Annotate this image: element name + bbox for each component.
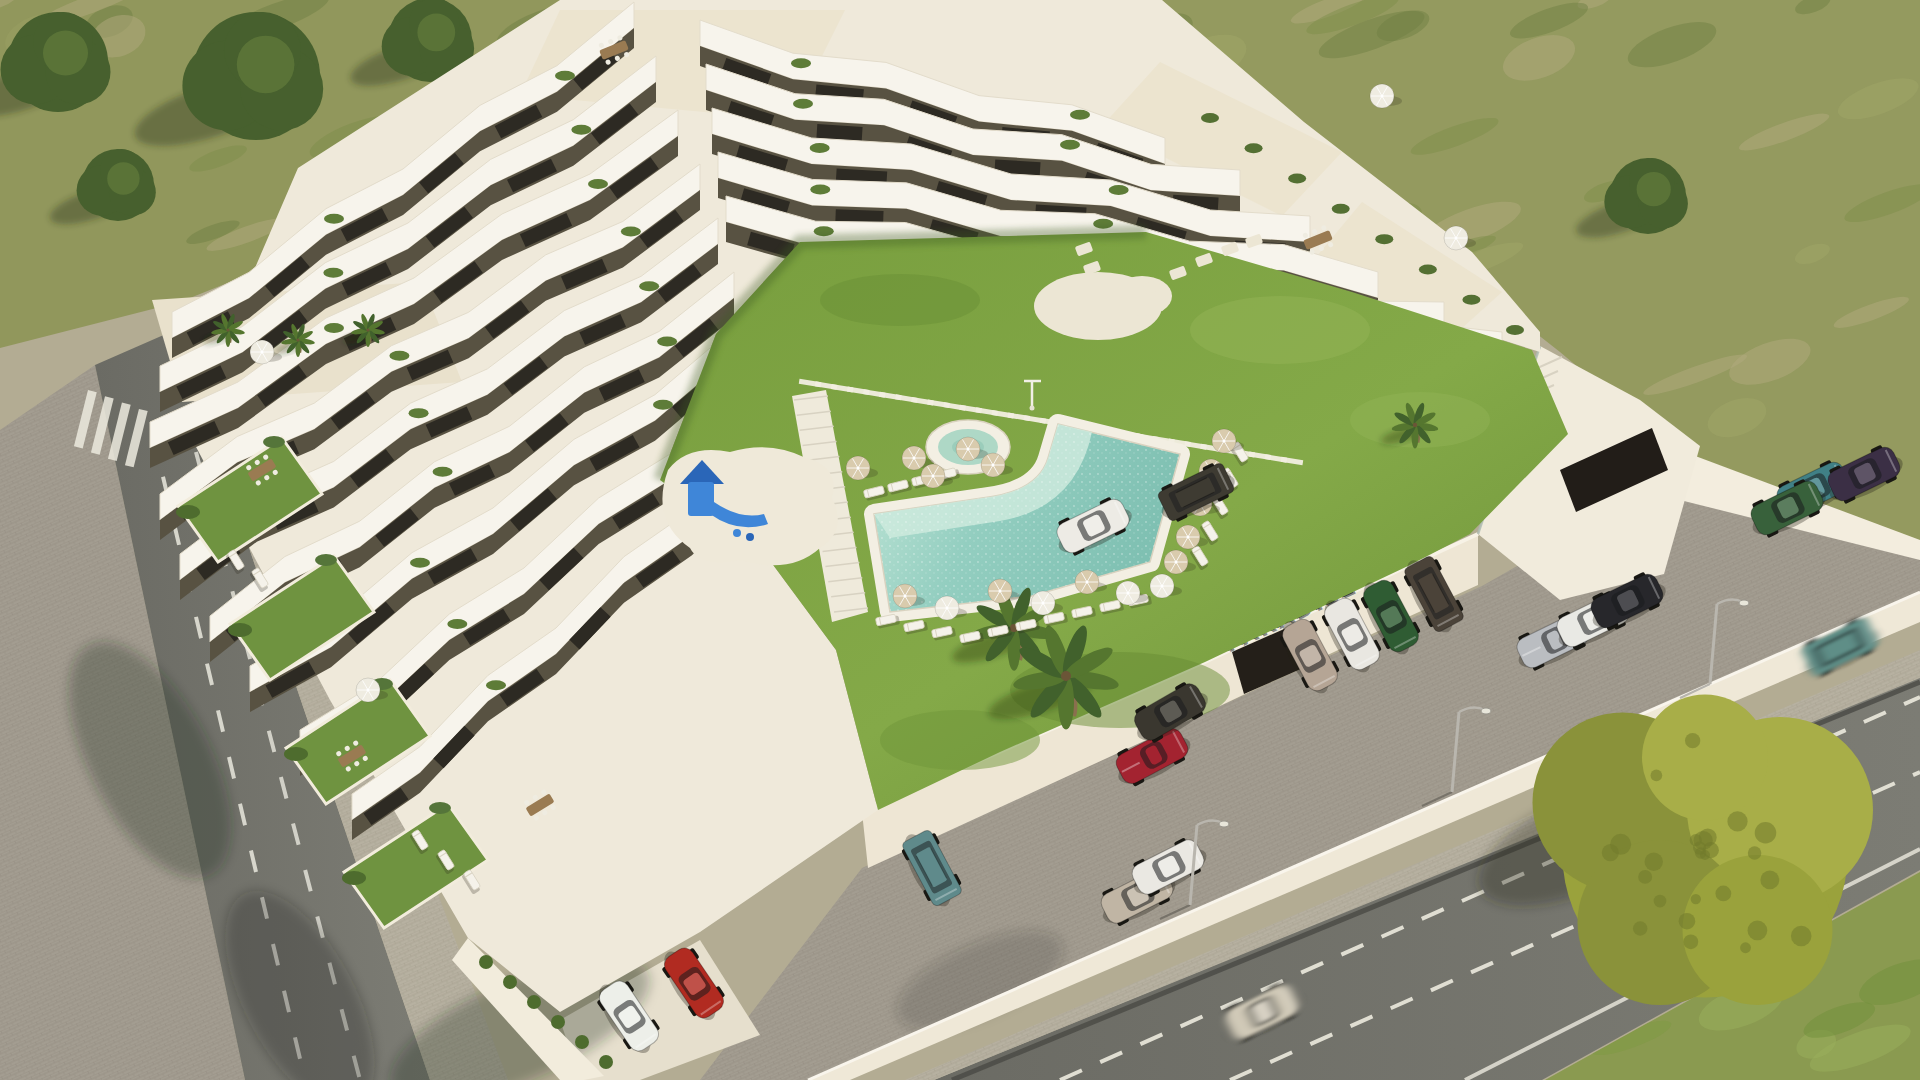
hedge (1332, 204, 1350, 214)
balcony-shrub (1060, 140, 1080, 150)
balcony-shrub (791, 58, 811, 68)
balcony-shrub (324, 323, 344, 333)
balcony-shrub (389, 351, 409, 361)
balcony-shrub (410, 558, 430, 568)
balcony-shrub (571, 125, 591, 135)
balcony-shrub (588, 179, 608, 189)
hedge (1462, 295, 1480, 305)
hedge (342, 871, 366, 885)
hedge (1201, 113, 1219, 123)
balcony-shrub (1109, 185, 1129, 195)
balcony-shrub (409, 408, 429, 418)
balcony-shrub (324, 214, 344, 224)
round-patio (1112, 276, 1172, 316)
hedge (176, 505, 200, 519)
spring-rider (746, 533, 754, 541)
balcony-shrub (793, 99, 813, 109)
hedge (527, 995, 541, 1009)
aerial-render-image: PARADISE PARADISE Resort (0, 0, 1920, 1080)
hedge (1245, 143, 1263, 153)
balcony-shrub (555, 71, 575, 81)
balcony-shrub (433, 467, 453, 477)
spring-rider (733, 529, 741, 537)
balcony-shrub (486, 680, 506, 690)
hedge (575, 1035, 589, 1049)
hedge (315, 554, 337, 566)
hedge (263, 436, 285, 448)
hedge (503, 975, 517, 989)
hedge (1506, 325, 1524, 335)
balcony-shrub (621, 226, 641, 236)
tree-canopy (1642, 695, 1768, 821)
balcony-shrub (639, 281, 659, 291)
hedge (429, 802, 451, 814)
hedge (1288, 174, 1306, 184)
hedge (1375, 234, 1393, 244)
hedge (284, 747, 308, 761)
scene-canvas: PARADISE PARADISE Resort (0, 0, 1920, 1080)
balcony-shrub (653, 400, 673, 410)
hedge (1419, 264, 1437, 274)
hedge (551, 1015, 565, 1029)
hedge (228, 623, 252, 637)
balcony-shrub (323, 268, 343, 278)
balcony-shrub (810, 184, 830, 194)
playground-tower (688, 482, 714, 516)
hedge (479, 955, 493, 969)
balcony-shrub (810, 143, 830, 153)
hedge (599, 1055, 613, 1069)
balcony-shrub (657, 336, 677, 346)
balcony-shrub (1070, 110, 1090, 120)
balcony-shrub (447, 619, 467, 629)
